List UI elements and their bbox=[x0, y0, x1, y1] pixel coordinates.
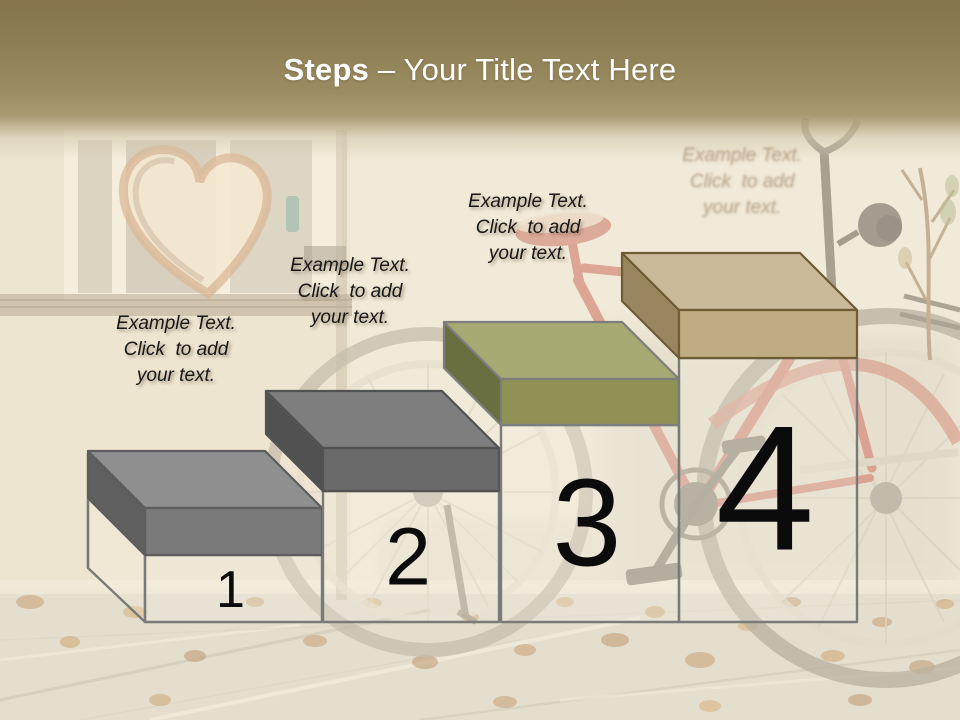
step-box-1 bbox=[88, 451, 322, 622]
slide: Steps – Your Title Text Here 1 2 3 4 Exa… bbox=[0, 0, 960, 720]
step-2-number: 2 bbox=[385, 516, 431, 598]
step-4-label: Example Text. Click to add your text. bbox=[637, 143, 847, 221]
step-3-number: 3 bbox=[553, 461, 622, 585]
step-4-number: 4 bbox=[716, 399, 815, 577]
step-3-label: Example Text. Click to add your text. bbox=[423, 189, 633, 267]
step-1-number: 1 bbox=[216, 563, 245, 615]
